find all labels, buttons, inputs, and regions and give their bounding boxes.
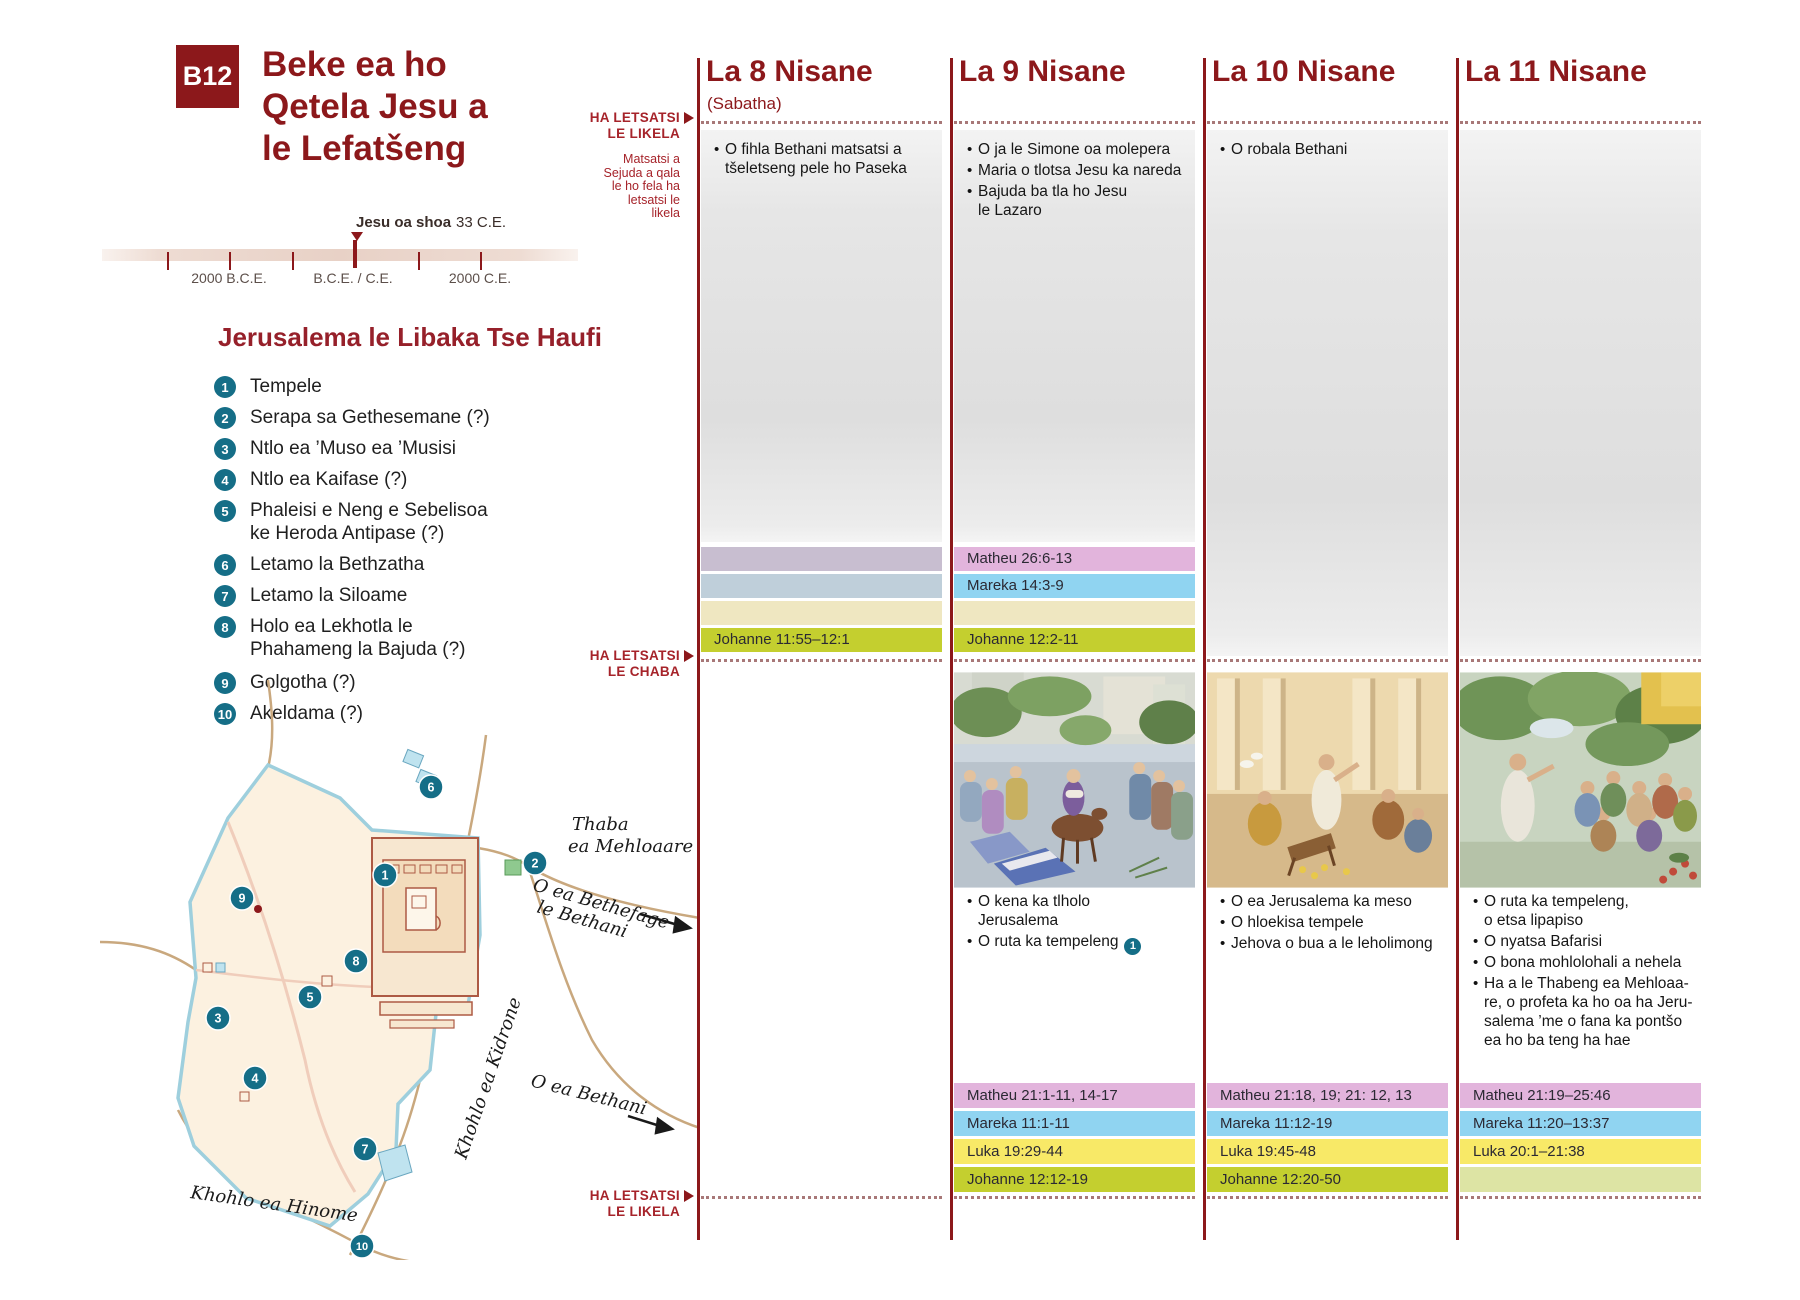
sunset-dashed-line xyxy=(1207,121,1448,124)
map-label-mount-line2: ea Mehloaare xyxy=(568,836,693,857)
timeline-tick-label: 2000 B.C.E. xyxy=(191,270,267,286)
scripture-band-johanne: Johanne 12:12-19 xyxy=(954,1167,1195,1192)
column-divider-line xyxy=(950,58,953,1240)
svg-text:4: 4 xyxy=(252,1071,259,1085)
map-building xyxy=(216,963,225,972)
sunset-dashed-line xyxy=(954,1196,1195,1199)
sunrise-dashed-line xyxy=(1460,659,1701,662)
label-sunset-top: HA LETSATSI LE LIKELA xyxy=(550,110,680,142)
event-item: •O robala Bethani xyxy=(1220,140,1440,159)
scripture-band-johanne: Johanne 12:2-11 xyxy=(954,628,1195,652)
sunrise-dashed-line xyxy=(954,659,1195,662)
page-title: Beke ea ho Qetela Jesu a le Lefatšeng xyxy=(262,44,488,170)
timeline-tick xyxy=(229,252,231,270)
day-column-header: La 9 Nisane xyxy=(959,55,1126,89)
scripture-band-luka-empty xyxy=(701,601,942,625)
event-item: •O ja le Simone oa molepera xyxy=(967,140,1187,159)
scripture-band-mareka-empty xyxy=(701,574,942,598)
legend-item: 4Ntlo ea Kaifase (?) xyxy=(214,469,407,491)
map-road xyxy=(268,680,272,768)
timeline-bar xyxy=(102,249,578,261)
scripture-band-johanne: Johanne 11:55–12:1 xyxy=(701,628,942,652)
day-column-header: La 10 Nisane xyxy=(1212,55,1395,89)
map-marker-9: 9 xyxy=(230,886,254,910)
event-item: •Ha a le Thabeng ea Mehloaa- re, o profe… xyxy=(1473,974,1701,1050)
legend-item: 8Holo ea Lekhotla le Phahameng la Bajuda… xyxy=(214,616,465,661)
illustration-triumphal-entry xyxy=(954,672,1195,888)
bullet-icon: • xyxy=(1473,932,1484,951)
event-item: •Bajuda ba tla ho Jesu le Lazaro xyxy=(967,182,1187,220)
legend-number-badge: 2 xyxy=(214,407,236,429)
map-golgotha-dot xyxy=(254,905,262,913)
sunset-dashed-line xyxy=(1460,1196,1701,1199)
sunrise-marker-arrow-icon xyxy=(684,650,694,662)
map-reference-badge: 1 xyxy=(1124,938,1141,955)
scripture-band-luka: Luka 19:45-48 xyxy=(1207,1139,1448,1164)
label-jewish-days-note: Matsatsi a Sejuda a qala le ho fela ha l… xyxy=(550,153,680,221)
timeline-event-tick xyxy=(353,240,357,268)
evening-events-panel: •O robala Bethani xyxy=(1207,130,1448,656)
svg-text:1: 1 xyxy=(382,868,389,882)
legend-number-badge: 4 xyxy=(214,469,236,491)
sunset-dashed-line xyxy=(954,121,1195,124)
map-building xyxy=(203,963,212,972)
bullet-icon: • xyxy=(1220,934,1231,953)
bullet-icon: • xyxy=(1220,913,1231,932)
bullet-icon: • xyxy=(1220,892,1231,911)
timeline-tick xyxy=(167,252,169,270)
bullet-icon: • xyxy=(1473,974,1484,1050)
scripture-band-luka: Luka 19:29-44 xyxy=(954,1139,1195,1164)
day-column-header: La 8 Nisane xyxy=(706,55,873,89)
bullet-icon: • xyxy=(1220,140,1231,159)
svg-text:8: 8 xyxy=(353,954,360,968)
arrow-to-bethany-icon xyxy=(656,1119,672,1133)
legend-number-badge: 1 xyxy=(214,376,236,398)
map-temple-building xyxy=(406,888,436,930)
column-divider-line xyxy=(1456,58,1459,1240)
scripture-band-luka: Luka 20:1–21:38 xyxy=(1460,1139,1701,1164)
map-building xyxy=(240,1092,249,1101)
legend-item: 1Tempele xyxy=(214,376,322,398)
svg-text:2: 2 xyxy=(532,856,539,870)
svg-text:9: 9 xyxy=(239,891,246,905)
event-item: •O nyatsa Bafarisi xyxy=(1473,932,1701,951)
sunset-marker-arrow-icon xyxy=(684,112,694,124)
bullet-icon: • xyxy=(967,892,978,930)
bullet-icon: • xyxy=(714,140,725,178)
event-item: •O ea Jerusalema ka meso xyxy=(1220,892,1448,911)
map-gethsemane-square xyxy=(505,860,521,875)
illustration-teaching-in-temple xyxy=(1460,672,1701,888)
day-events-panel: •O kena ka tlholo Jerusalema •O ruta ka … xyxy=(954,892,1195,957)
map-stoa-detail xyxy=(390,1020,454,1028)
event-item: •O ruta ka tempeleng, o etsa lipapiso xyxy=(1473,892,1701,930)
sunset-marker-arrow-icon xyxy=(684,1190,694,1202)
bullet-icon: • xyxy=(1473,953,1484,972)
svg-text:6: 6 xyxy=(428,780,435,794)
event-item: •O kena ka tlholo Jerusalema xyxy=(967,892,1195,930)
map-legend-heading: Jerusalema le Libaka Tse Haufi xyxy=(218,322,602,353)
sunrise-dashed-line xyxy=(1207,659,1448,662)
event-item: •Maria o tlotsa Jesu ka nareda xyxy=(967,161,1187,180)
svg-text:7: 7 xyxy=(362,1142,369,1156)
scripture-band-mareka: Mareka 11:12-19 xyxy=(1207,1111,1448,1136)
timeline-event-label: Jesu oa shoa33 C.E. xyxy=(356,214,506,231)
timeline-tick xyxy=(418,252,420,270)
map-marker-6: 6 xyxy=(419,775,443,799)
map-road xyxy=(100,942,196,970)
bullet-icon: • xyxy=(1473,892,1484,930)
evening-events-panel xyxy=(1460,130,1701,656)
map-label-bethany-road: O ea Bethani xyxy=(529,1070,649,1119)
legend-number-badge: 3 xyxy=(214,438,236,460)
column-divider-line xyxy=(1203,58,1206,1240)
map-marker-2: 2 xyxy=(523,851,547,875)
sunrise-dashed-line xyxy=(701,659,942,662)
evening-events-panel: •O ja le Simone oa molepera •Maria o tlo… xyxy=(954,130,1195,542)
event-item: •O hloekisa tempele xyxy=(1220,913,1448,932)
evening-events-panel: •O fihla Bethani matsatsi a tšeletseng p… xyxy=(701,130,942,542)
map-marker-7: 7 xyxy=(353,1137,377,1161)
infographic-canvas: B12 Beke ea ho Qetela Jesu a le Lefatšen… xyxy=(0,0,1800,1300)
day-column-subheader: (Sabatha) xyxy=(707,94,782,114)
map-royal-stoa xyxy=(380,1002,472,1015)
event-item: •O bona mohlolohali a nehela xyxy=(1473,953,1701,972)
column-divider-line xyxy=(697,58,700,1240)
map-pool-bethzatha xyxy=(403,749,424,767)
sunset-dashed-line xyxy=(1460,121,1701,124)
day-column-header: La 11 Nisane xyxy=(1465,55,1647,89)
day-events-panel: •O ruta ka tempeleng, o etsa lipapiso •O… xyxy=(1460,892,1701,1052)
svg-text:10: 10 xyxy=(356,1241,368,1253)
legend-number-badge: 7 xyxy=(214,585,236,607)
legend-item: 7Letamo la Siloame xyxy=(214,585,407,607)
bullet-icon: • xyxy=(967,932,978,955)
svg-text:5: 5 xyxy=(307,990,314,1004)
scripture-band-matheu-empty xyxy=(701,547,942,571)
map-marker-3: 3 xyxy=(206,1006,230,1030)
event-item: •O fihla Bethani matsatsi a tšeletseng p… xyxy=(714,140,934,178)
legend-item: 2Serapa sa Gethesemane (?) xyxy=(214,407,490,429)
jerusalem-map: Thaba ea Mehloaare O ea Bethefage le Bet… xyxy=(100,680,700,1260)
scripture-band-mareka: Mareka 11:20–13:37 xyxy=(1460,1111,1701,1136)
timeline-tick-label: 2000 C.E. xyxy=(449,270,511,286)
illustration-cleansing-temple xyxy=(1207,672,1448,888)
arrow-to-bethphage-icon xyxy=(674,918,690,932)
timeline-tick xyxy=(292,252,294,270)
bullet-icon: • xyxy=(967,140,978,159)
sunset-dashed-line xyxy=(1207,1196,1448,1199)
label-sunset-bottom: HA LETSATSI LE LIKELA xyxy=(550,1188,680,1220)
day-events-panel: •O ea Jerusalema ka meso •O hloekisa tem… xyxy=(1207,892,1448,955)
legend-number-badge: 5 xyxy=(214,500,236,522)
chart-id-badge: B12 xyxy=(176,45,239,108)
map-label-mount-line1: Thaba xyxy=(572,814,629,835)
event-item: •O ruta ka tempeleng1 xyxy=(967,932,1195,955)
scripture-band-mareka: Mareka 14:3-9 xyxy=(954,574,1195,598)
label-sunrise: HA LETSATSI LE CHABA xyxy=(550,648,680,680)
legend-number-badge: 6 xyxy=(214,554,236,576)
scripture-band-matheu: Matheu 21:19–25:46 xyxy=(1460,1083,1701,1108)
bullet-icon: • xyxy=(967,161,978,180)
sunset-dashed-line xyxy=(701,1196,942,1199)
legend-item: 5Phaleisi e Neng e Sebelisoa ke Heroda A… xyxy=(214,500,488,545)
map-label-kidron: Khohlo ea Kidrone xyxy=(451,995,526,1163)
map-marker-1: 1 xyxy=(373,863,397,887)
scripture-band-luka-empty xyxy=(954,601,1195,625)
event-item: •Jehova o bua a le leholimong xyxy=(1220,934,1448,953)
sunset-dashed-line xyxy=(701,121,942,124)
scripture-band-johanne: Johanne 12:20-50 xyxy=(1207,1167,1448,1192)
scripture-band-matheu: Matheu 21:1-11, 14-17 xyxy=(954,1083,1195,1108)
scripture-band-matheu: Matheu 21:18, 19; 21: 12, 13 xyxy=(1207,1083,1448,1108)
svg-text:3: 3 xyxy=(215,1011,222,1025)
map-marker-8: 8 xyxy=(344,949,368,973)
legend-item: 6Letamo la Bethzatha xyxy=(214,554,424,576)
scripture-band-johanne-empty xyxy=(1460,1167,1701,1192)
scripture-band-matheu: Matheu 26:6-13 xyxy=(954,547,1195,571)
legend-item: 3Ntlo ea ’Muso ea ’Musisi xyxy=(214,438,456,460)
map-marker-5: 5 xyxy=(298,985,322,1009)
map-marker-10: 10 xyxy=(350,1234,374,1258)
bullet-icon: • xyxy=(967,182,978,220)
legend-number-badge: 8 xyxy=(214,616,236,638)
timeline-tick xyxy=(480,252,482,270)
map-building xyxy=(322,976,332,986)
map-marker-4: 4 xyxy=(243,1066,267,1090)
era-timeline: Jesu oa shoa33 C.E. 2000 B.C.E. B.C.E. /… xyxy=(102,206,578,296)
timeline-tick-label: B.C.E. / C.E. xyxy=(313,270,392,286)
scripture-band-mareka: Mareka 11:1-11 xyxy=(954,1111,1195,1136)
